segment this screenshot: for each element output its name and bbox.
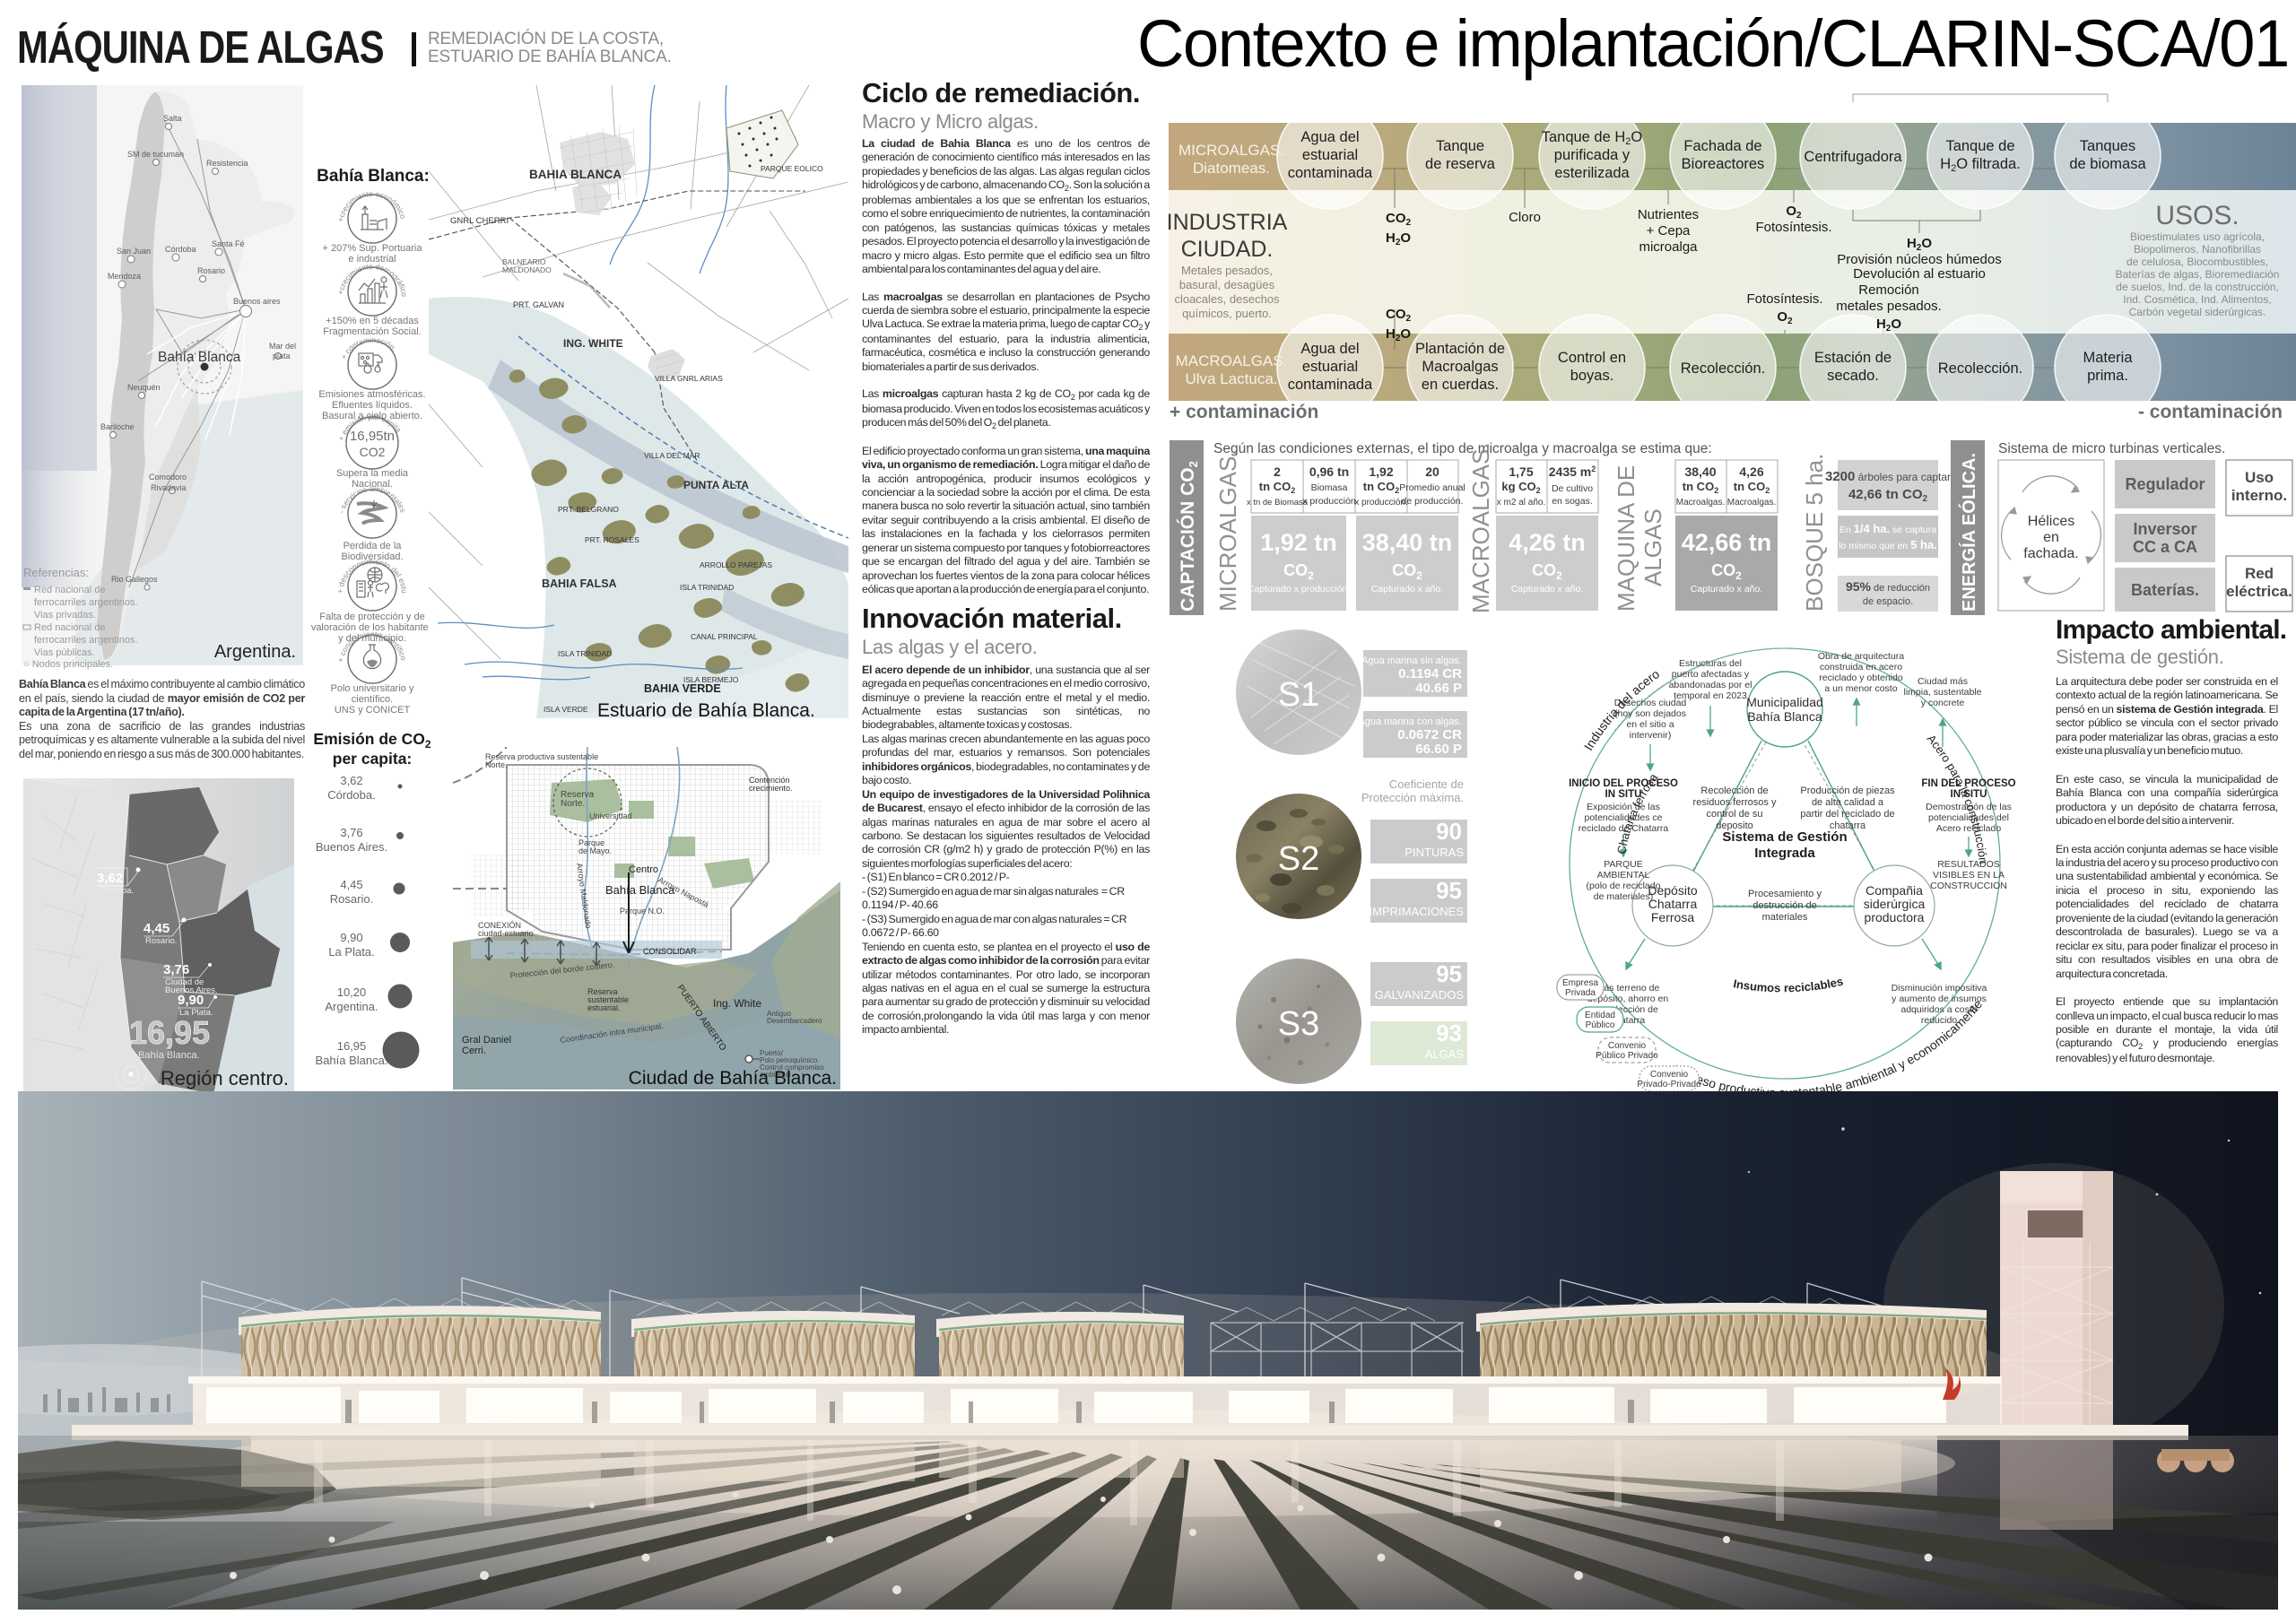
svg-text:Integrada: Integrada bbox=[1754, 846, 1815, 861]
svg-text:Macroalgas.: Macroalgas. bbox=[1676, 498, 1725, 508]
svg-text:Mar del: Mar del bbox=[269, 342, 296, 351]
svg-text:RESULTADOS: RESULTADOS bbox=[1937, 859, 2000, 870]
svg-text:3200 árboles para captar: 3200 árboles para captar bbox=[1825, 469, 1951, 484]
svg-text:en sogas.: en sogas. bbox=[1552, 496, 1593, 507]
svg-text:Rosario.: Rosario. bbox=[145, 936, 177, 946]
svg-text:Inversor: Inversor bbox=[2133, 520, 2196, 538]
svg-text:Salta: Salta bbox=[163, 114, 182, 123]
svg-text:Metales pesados,: Metales pesados, bbox=[1181, 264, 1273, 277]
svg-text:fachada.: fachada. bbox=[2023, 546, 2078, 561]
svg-text:La Plata.: La Plata. bbox=[328, 945, 374, 959]
svg-text:Disminución impositiva: Disminución impositiva bbox=[1892, 983, 1987, 994]
svg-text:Ferrosa: Ferrosa bbox=[1651, 910, 1694, 924]
svg-text:contaminada: contaminada bbox=[1288, 165, 1373, 181]
svg-text:3,76: 3,76 bbox=[163, 962, 189, 977]
svg-text:Baterías de algas, Bioremediac: Baterías de algas, Bioremediación bbox=[2116, 268, 2280, 281]
svg-text:Córdoba.: Córdoba. bbox=[99, 886, 134, 896]
svg-text:Plantación de: Plantación de bbox=[1415, 341, 1505, 357]
svg-text:Fotosíntesis.: Fotosíntesis. bbox=[1755, 220, 1831, 235]
svg-text:Fachada de: Fachada de bbox=[1683, 138, 1761, 154]
svg-text:Bahía Blanca.: Bahía Blanca. bbox=[138, 1050, 200, 1061]
svg-text:ferrocarriles argentinos.: ferrocarriles argentinos. bbox=[34, 635, 138, 646]
svg-text:Procesamiento y: Procesamiento y bbox=[1748, 889, 1822, 899]
svg-text:Promedio anual: Promedio anual bbox=[1399, 482, 1465, 493]
svg-text:+ desconocimiento del estuario: + desconocimiento del estuario bbox=[323, 179, 409, 594]
svg-text:95: 95 bbox=[1436, 877, 1462, 904]
svg-text:estuarial: estuarial bbox=[1302, 147, 1358, 163]
svg-text:Obra de arquitectura: Obra de arquitectura bbox=[1818, 651, 1904, 662]
svg-text:Agua marina sin algas.: Agua marina sin algas. bbox=[1361, 655, 1462, 666]
svg-text:1,92 tn: 1,92 tn bbox=[1260, 529, 1337, 556]
svg-text:CAPTACIÓN CO2: CAPTACIÓN CO2 bbox=[1177, 461, 1200, 612]
svg-text:BAHIA BLANCA: BAHIA BLANCA bbox=[529, 168, 622, 181]
svg-text:Rosario: Rosario bbox=[197, 266, 225, 275]
svg-text:Vias privadas.: Vias privadas. bbox=[34, 610, 96, 621]
svg-text:a un menor costo: a un menor costo bbox=[1824, 683, 1897, 694]
svg-text:0.1194 CR: 0.1194 CR bbox=[1398, 666, 1462, 681]
svg-text:Público: Público bbox=[1586, 1020, 1615, 1030]
svg-text:MAQUINA DE: MAQUINA DE bbox=[1613, 465, 1639, 612]
svg-text:Santa Fé: Santa Fé bbox=[212, 239, 245, 248]
svg-text:2: 2 bbox=[1274, 464, 1281, 479]
svg-text:INDUSTRIA: INDUSTRIA bbox=[1167, 210, 1288, 235]
svg-text:Red nacional de: Red nacional de bbox=[34, 585, 106, 595]
svg-text:x producción: x producción bbox=[1302, 496, 1356, 507]
svg-text:interno.: interno. bbox=[2231, 487, 2287, 504]
svg-text:Tanque: Tanque bbox=[1436, 138, 1484, 154]
svg-text:Gral Daniel: Gral Daniel bbox=[462, 1035, 511, 1046]
svg-text:3,62: 3,62 bbox=[97, 871, 123, 886]
svg-text:control de su: control de su bbox=[1707, 809, 1763, 820]
svg-text:S2: S2 bbox=[1278, 840, 1319, 878]
svg-text:Referencias:: Referencias: bbox=[23, 566, 89, 579]
svg-text:42,66 tn CO2: 42,66 tn CO2 bbox=[1848, 487, 1928, 504]
svg-text:Neuquén: Neuquén bbox=[127, 383, 161, 392]
svg-text:Estructuras del: Estructuras del bbox=[1679, 658, 1742, 669]
svg-text:Remoción: Remoción bbox=[1858, 282, 1919, 298]
svg-text:GNRL CHERRI: GNRL CHERRI bbox=[450, 216, 509, 226]
svg-text:MACROALGAS.: MACROALGAS. bbox=[1467, 442, 1494, 613]
svg-text:Según las condiciones externas: Según las condiciones externas, el tipo … bbox=[1213, 441, 1712, 456]
svg-text:0.0672 CR: 0.0672 CR bbox=[1397, 727, 1462, 742]
svg-text:reciclado y obtenido: reciclado y obtenido bbox=[1819, 673, 1903, 683]
svg-text:Baterías.: Baterías. bbox=[2131, 581, 2199, 599]
svg-text:Norte.: Norte. bbox=[485, 760, 508, 769]
svg-text:kg CO2: kg CO2 bbox=[1501, 480, 1540, 495]
svg-text:intervenir): intervenir) bbox=[1630, 730, 1672, 741]
svg-text:Insumos reciclables: Insumos reciclables bbox=[1732, 975, 1844, 995]
svg-text:Municipalidad: Municipalidad bbox=[1746, 695, 1823, 709]
svg-text:Red: Red bbox=[2245, 565, 2274, 582]
svg-text:Desembarcadero: Desembarcadero bbox=[767, 1017, 822, 1025]
svg-text:Convenio: Convenio bbox=[1650, 1070, 1689, 1080]
svg-text:Hélices: Hélices bbox=[2028, 514, 2074, 529]
svg-text:metales pesados.: metales pesados. bbox=[1836, 299, 1942, 314]
svg-text:siderúrgica: siderúrgica bbox=[1864, 897, 1926, 911]
svg-text:Nutrientes: Nutrientes bbox=[1638, 207, 1699, 222]
svg-text:(polo de reciclado: (polo de reciclado bbox=[1587, 881, 1661, 891]
svg-text:materiales: materiales bbox=[1762, 912, 1808, 923]
svg-text:SM de tucumán: SM de tucumán bbox=[127, 150, 184, 159]
svg-text:Exposición de las: Exposición de las bbox=[1587, 802, 1660, 812]
svg-text:Agua marina con algas.: Agua marina con algas. bbox=[1358, 716, 1462, 727]
svg-text:purificada y: purificada y bbox=[1554, 147, 1631, 163]
svg-text:Protección máxima.: Protección máxima. bbox=[1361, 791, 1464, 804]
svg-text:crecimiento.: crecimiento. bbox=[749, 784, 793, 793]
svg-text:16,95: 16,95 bbox=[129, 1014, 210, 1051]
svg-text:Rio Gallegos: Rio Gallegos bbox=[111, 575, 158, 584]
svg-text:eléctrica.: eléctrica. bbox=[2226, 583, 2292, 600]
svg-text:Producción de piezas: Producción de piezas bbox=[1800, 785, 1895, 796]
svg-text:ciudad-estuario.: ciudad-estuario. bbox=[478, 929, 535, 938]
svg-text:Comodoro: Comodoro bbox=[149, 473, 187, 482]
svg-text:Fotosíntesis.: Fotosíntesis. bbox=[1746, 291, 1822, 307]
svg-text:Ciudad de Bahía Blanca.: Ciudad de Bahía Blanca. bbox=[629, 1068, 837, 1089]
svg-text:x m2 al año.: x m2 al año. bbox=[1497, 498, 1545, 508]
svg-text:Control en: Control en bbox=[1558, 350, 1626, 366]
svg-text:estuarial: estuarial bbox=[1302, 359, 1358, 375]
svg-text:Devolución al estuario: Devolución al estuario bbox=[1853, 266, 1986, 282]
svg-text:+ Cepa: + Cepa bbox=[1647, 223, 1691, 239]
svg-text:Macroalgas.: Macroalgas. bbox=[1727, 498, 1776, 508]
svg-text:Sistema de Gestión: Sistema de Gestión bbox=[1722, 829, 1847, 845]
svg-text:CONSTRUCCION: CONSTRUCCION bbox=[1930, 881, 2007, 891]
svg-text:Rivadavia: Rivadavia bbox=[151, 483, 187, 492]
svg-text:4,45: 4,45 bbox=[143, 921, 170, 936]
svg-text:Biomasa: Biomasa bbox=[1311, 482, 1348, 493]
svg-text:residuos ferrosos y: residuos ferrosos y bbox=[1693, 797, 1777, 808]
svg-text:Ulva Lactuca.: Ulva Lactuca. bbox=[1186, 370, 1278, 387]
svg-text:x tn de Biomasa: x tn de Biomasa bbox=[1247, 498, 1309, 508]
svg-text:Chatarra: Chatarra bbox=[1648, 897, 1698, 911]
svg-text:Rosario.: Rosario. bbox=[330, 892, 373, 906]
svg-text:ISLA TRINIDAD: ISLA TRINIDAD bbox=[558, 649, 612, 658]
svg-text:Uso: Uso bbox=[2245, 469, 2274, 486]
svg-text:boyas.: boyas. bbox=[1570, 368, 1614, 384]
svg-text:BOSQUE 5 ha.: BOSQUE 5 ha. bbox=[1801, 454, 1828, 612]
svg-text:93: 93 bbox=[1436, 1020, 1462, 1046]
svg-text:1,92: 1,92 bbox=[1369, 464, 1393, 479]
svg-text:tn CO2: tn CO2 bbox=[1683, 480, 1718, 495]
svg-text:de producción.: de producción. bbox=[1402, 496, 1464, 507]
svg-text:de celulosa, Biocombustibles,: de celulosa, Biocombustibles, bbox=[2126, 256, 2268, 268]
svg-text:3,76: 3,76 bbox=[340, 826, 362, 839]
svg-text:Público Privado: Público Privado bbox=[1596, 1051, 1658, 1061]
svg-text:Sistema de micro turbinas vert: Sistema de micro turbinas verticales. bbox=[1998, 441, 2225, 456]
svg-text:de reserva: de reserva bbox=[1425, 156, 1496, 172]
svg-text:Privado-Privado: Privado-Privado bbox=[1637, 1080, 1701, 1089]
svg-text:en: en bbox=[2043, 530, 2059, 545]
svg-text:Resistencia: Resistencia bbox=[206, 159, 248, 168]
svg-text:Bariloche: Bariloche bbox=[100, 422, 135, 431]
svg-text:x producción.: x producción. bbox=[1354, 498, 1407, 508]
svg-text:CO2: CO2 bbox=[360, 445, 386, 459]
svg-text:en cuerdas.: en cuerdas. bbox=[1422, 377, 1499, 393]
svg-text:4,45: 4,45 bbox=[340, 878, 362, 891]
svg-text:Argentina.: Argentina. bbox=[214, 642, 296, 662]
svg-text:chatarra: chatarra bbox=[1830, 820, 1866, 831]
svg-text:Ing. White: Ing. White bbox=[713, 997, 761, 1010]
svg-text:CIUDAD.: CIUDAD. bbox=[1181, 237, 1274, 262]
svg-text:de espacio.: de espacio. bbox=[1863, 596, 1913, 607]
svg-text:cloacales, desechos: cloacales, desechos bbox=[1174, 292, 1280, 306]
svg-text:USOS.: USOS. bbox=[2155, 201, 2239, 230]
svg-text:BAHIA VERDE: BAHIA VERDE bbox=[644, 682, 721, 695]
svg-text:Convenio: Convenio bbox=[1608, 1041, 1647, 1051]
svg-text:de materiales): de materiales) bbox=[1594, 891, 1654, 902]
svg-text:+ contaminación: + contaminación bbox=[1170, 402, 1318, 422]
svg-text:Empresa: Empresa bbox=[1562, 978, 1598, 988]
svg-text:Tanque de: Tanque de bbox=[1945, 138, 2014, 154]
svg-text:San Juan: San Juan bbox=[117, 247, 151, 256]
svg-text:Capturado x año.: Capturado x año. bbox=[1371, 584, 1444, 595]
svg-text:Centro: Centro bbox=[629, 864, 658, 875]
svg-text:Materia: Materia bbox=[2083, 350, 2133, 366]
svg-text:Ind. Cosmética, Ind. Alimentos: Ind. Cosmética, Ind. Alimentos, bbox=[2123, 293, 2271, 306]
svg-text:ALGAS: ALGAS bbox=[1639, 508, 1666, 586]
svg-text:38,40 tn: 38,40 tn bbox=[1362, 529, 1453, 556]
svg-text:construida en acero: construida en acero bbox=[1820, 662, 1902, 673]
svg-text:Macroalgas: Macroalgas bbox=[1422, 359, 1498, 375]
svg-text:9,90: 9,90 bbox=[340, 931, 362, 944]
svg-text:Regulador: Regulador bbox=[2125, 475, 2205, 493]
svg-text:Buenos aires: Buenos aires bbox=[233, 297, 281, 306]
svg-text:partir del reciclado de: partir del reciclado de bbox=[1800, 809, 1894, 820]
svg-text:S3: S3 bbox=[1278, 1005, 1319, 1043]
svg-text:16,95tn: 16,95tn bbox=[350, 429, 395, 444]
svg-text:Norte.: Norte. bbox=[561, 799, 585, 809]
svg-text:Centrifugadora: Centrifugadora bbox=[1804, 149, 1902, 165]
svg-text:Córdoba: Córdoba bbox=[165, 245, 196, 254]
svg-text:De cultivo: De cultivo bbox=[1552, 483, 1593, 494]
svg-text:Estación de: Estación de bbox=[1814, 350, 1892, 366]
svg-text:y concrete: y concrete bbox=[1921, 698, 1965, 708]
svg-text:Bioestimulates uso agrícola,: Bioestimulates uso agrícola, bbox=[2130, 230, 2265, 243]
svg-text:de alta calidad a: de alta calidad a bbox=[1812, 797, 1884, 808]
svg-text:ferrocarriles argentinos.: ferrocarriles argentinos. bbox=[34, 597, 138, 608]
svg-text:IMPRIMACIONES: IMPRIMACIONES bbox=[1370, 905, 1465, 918]
svg-text:3,62: 3,62 bbox=[340, 774, 362, 787]
svg-text:S1: S1 bbox=[1278, 676, 1319, 714]
svg-text:Coeficiente de: Coeficiente de bbox=[1389, 777, 1464, 791]
svg-text:GALVANIZADOS: GALVANIZADOS bbox=[1375, 988, 1465, 1002]
svg-text:Entidad: Entidad bbox=[1585, 1011, 1615, 1020]
svg-text:contaminada: contaminada bbox=[1288, 377, 1373, 393]
svg-text:Acero reciclado: Acero reciclado bbox=[1936, 823, 2002, 834]
svg-text:plata: plata bbox=[273, 352, 291, 360]
svg-text:Carbón vegetal siderúrgicas.: Carbón vegetal siderúrgicas. bbox=[2129, 306, 2266, 318]
svg-text:de biomasa: de biomasa bbox=[2069, 156, 2146, 172]
svg-text:MACROALGAS.: MACROALGAS. bbox=[1176, 352, 1288, 369]
svg-text:VISIBLES EN LA: VISIBLES EN LA bbox=[1933, 870, 2005, 881]
svg-text:38,40: 38,40 bbox=[1684, 464, 1716, 479]
svg-text:95: 95 bbox=[1436, 960, 1462, 987]
svg-text:basural, desagües: basural, desagües bbox=[1179, 278, 1275, 291]
svg-text:tn CO2: tn CO2 bbox=[1259, 480, 1295, 495]
svg-text:Parque N.O.: Parque N.O. bbox=[620, 907, 665, 916]
svg-text:90: 90 bbox=[1436, 818, 1462, 845]
svg-text:de Mayo.: de Mayo. bbox=[578, 846, 612, 855]
svg-text:Privada: Privada bbox=[1565, 988, 1596, 998]
svg-text:CC a CA: CC a CA bbox=[2133, 538, 2197, 556]
svg-text:esterilizada: esterilizada bbox=[1554, 165, 1630, 181]
svg-text:Estuario de Bahía Blanca.: Estuario de Bahía Blanca. bbox=[597, 700, 815, 719]
svg-text:VILLA GNRL ARIAS: VILLA GNRL ARIAS bbox=[655, 374, 723, 383]
svg-text:16,95: 16,95 bbox=[337, 1039, 367, 1053]
svg-text:ISLA VERDE: ISLA VERDE bbox=[544, 705, 588, 714]
svg-text:productora: productora bbox=[1865, 910, 1925, 924]
svg-text:Tanques: Tanques bbox=[2080, 138, 2135, 154]
svg-text:Provisión núcleos húmedos: Provisión núcleos húmedos bbox=[1837, 252, 2001, 267]
svg-text:4,26: 4,26 bbox=[1739, 464, 1763, 479]
svg-text:66.60 P: 66.60 P bbox=[1415, 742, 1462, 757]
svg-text:4,26 tn: 4,26 tn bbox=[1509, 529, 1586, 556]
svg-text:PARQUE: PARQUE bbox=[1604, 859, 1643, 870]
svg-text:Ciudad más: Ciudad más bbox=[1918, 676, 1968, 687]
svg-text:tn CO2: tn CO2 bbox=[1734, 480, 1770, 495]
svg-text:MICROALGAS.: MICROALGAS. bbox=[1178, 142, 1284, 159]
svg-text:químicos, puerto.: químicos, puerto. bbox=[1182, 307, 1272, 320]
svg-text:Agua del: Agua del bbox=[1300, 341, 1359, 357]
svg-text:- contaminación: - contaminación bbox=[2138, 402, 2283, 422]
svg-text:Vias públicas.: Vias públicas. bbox=[34, 647, 95, 658]
svg-text:40.66 P: 40.66 P bbox=[1415, 681, 1462, 696]
svg-text:Buenos Aires.: Buenos Aires. bbox=[165, 985, 218, 995]
svg-text:ENERGÍA EÓLICA.: ENERGÍA EÓLICA. bbox=[1958, 453, 1979, 612]
svg-text:en el sitio a: en el sitio a bbox=[1626, 719, 1674, 730]
svg-text:Buenos Aires.: Buenos Aires. bbox=[316, 840, 387, 854]
svg-text:ALGAS: ALGAS bbox=[1425, 1047, 1465, 1061]
svg-text:Capturado x año.: Capturado x año. bbox=[1511, 584, 1584, 595]
svg-text:+crecimiento económico: +crecimiento económico bbox=[335, 189, 408, 222]
svg-text:microalga: microalga bbox=[1639, 239, 1698, 255]
svg-text:Cerri.: Cerri. bbox=[462, 1046, 486, 1056]
svg-text:destrucción de: destrucción de bbox=[1752, 900, 1817, 911]
svg-text:Recolección.: Recolección. bbox=[1681, 360, 1765, 377]
svg-text:limpia, sustentable: limpia, sustentable bbox=[1904, 687, 1982, 698]
svg-text:Agua del: Agua del bbox=[1300, 129, 1359, 145]
svg-text:Cloro: Cloro bbox=[1509, 210, 1541, 225]
svg-text:estuarial.: estuarial. bbox=[587, 1003, 621, 1012]
svg-text:Recolección de: Recolección de bbox=[1700, 785, 1768, 796]
svg-text:10,20: 10,20 bbox=[337, 985, 367, 999]
svg-text:Biopolimeros, Nanofibrillas: Biopolimeros, Nanofibrillas bbox=[2134, 243, 2261, 256]
svg-text:Argentina.: Argentina. bbox=[325, 1000, 378, 1013]
svg-text:Mendoza: Mendoza bbox=[108, 272, 141, 281]
svg-text:deposito: deposito bbox=[1716, 820, 1753, 831]
svg-text:Bahía Blanca.: Bahía Blanca. bbox=[316, 1054, 387, 1067]
svg-text:42,66 tn: 42,66 tn bbox=[1682, 529, 1772, 556]
svg-text:Recolección.: Recolección. bbox=[1938, 360, 2022, 377]
svg-text:puerto afectadas y: puerto afectadas y bbox=[1672, 669, 1750, 680]
svg-text:Bahía Blanca: Bahía Blanca bbox=[1747, 709, 1822, 724]
svg-text:lo mismo que en 5 ha.: lo mismo que en 5 ha. bbox=[1839, 538, 1937, 551]
svg-text:2435 m2: 2435 m2 bbox=[1549, 464, 1596, 479]
svg-text:Más terreno de: Más terreno de bbox=[1596, 983, 1660, 994]
svg-text:ING. WHITE: ING. WHITE bbox=[563, 337, 623, 350]
svg-text:MICROALGAS.: MICROALGAS. bbox=[1214, 449, 1241, 612]
svg-text:secado.: secado. bbox=[1827, 368, 1879, 384]
svg-text:Capturado x año.: Capturado x año. bbox=[1691, 584, 1763, 595]
svg-text:Capturado x producción.: Capturado x producción. bbox=[1248, 584, 1350, 595]
svg-text:1,75: 1,75 bbox=[1509, 464, 1533, 479]
svg-text:CONSOLIDAR: CONSOLIDAR bbox=[643, 947, 697, 956]
svg-text:prima.: prima. bbox=[2087, 368, 2128, 384]
svg-text:PARQUE EOLICO: PARQUE EOLICO bbox=[761, 164, 823, 173]
svg-text:20: 20 bbox=[1425, 464, 1439, 479]
svg-text:de suelos, Ind. de la construc: de suelos, Ind. de la construcción, bbox=[2116, 281, 2278, 293]
svg-text:Córdoba.: Córdoba. bbox=[327, 788, 375, 802]
svg-text:INICIO DEL PROCESO: INICIO DEL PROCESO bbox=[1569, 778, 1678, 789]
svg-text:ISLA TRINIDAD: ISLA TRINIDAD bbox=[680, 583, 734, 592]
svg-text:Red nacional de: Red nacional de bbox=[34, 622, 106, 633]
svg-text:Diatomeas.: Diatomeas. bbox=[1193, 160, 1270, 177]
svg-text:Bioreactores: Bioreactores bbox=[1682, 156, 1765, 172]
svg-text:En 1/4 ha. se captura: En 1/4 ha. se captura bbox=[1839, 522, 1936, 535]
svg-text:0,96 tn: 0,96 tn bbox=[1309, 464, 1349, 479]
svg-text:Región centro.: Región centro. bbox=[161, 1067, 289, 1089]
svg-text:AMBIENTAL: AMBIENTAL bbox=[1597, 870, 1650, 881]
svg-text:tn CO2: tn CO2 bbox=[1363, 480, 1399, 495]
svg-text:Bahía Blanca: Bahía Blanca bbox=[158, 350, 241, 365]
svg-text:Universidad: Universidad bbox=[589, 811, 632, 820]
svg-text:MALDONADO: MALDONADO bbox=[502, 265, 552, 274]
svg-text:PINTURAS: PINTURAS bbox=[1405, 846, 1464, 859]
svg-text:Compañia: Compañia bbox=[1865, 883, 1923, 898]
svg-text:PRT. GALVAN: PRT. GALVAN bbox=[513, 300, 564, 309]
svg-text:abandonadas por el: abandonadas por el bbox=[1669, 680, 1752, 690]
